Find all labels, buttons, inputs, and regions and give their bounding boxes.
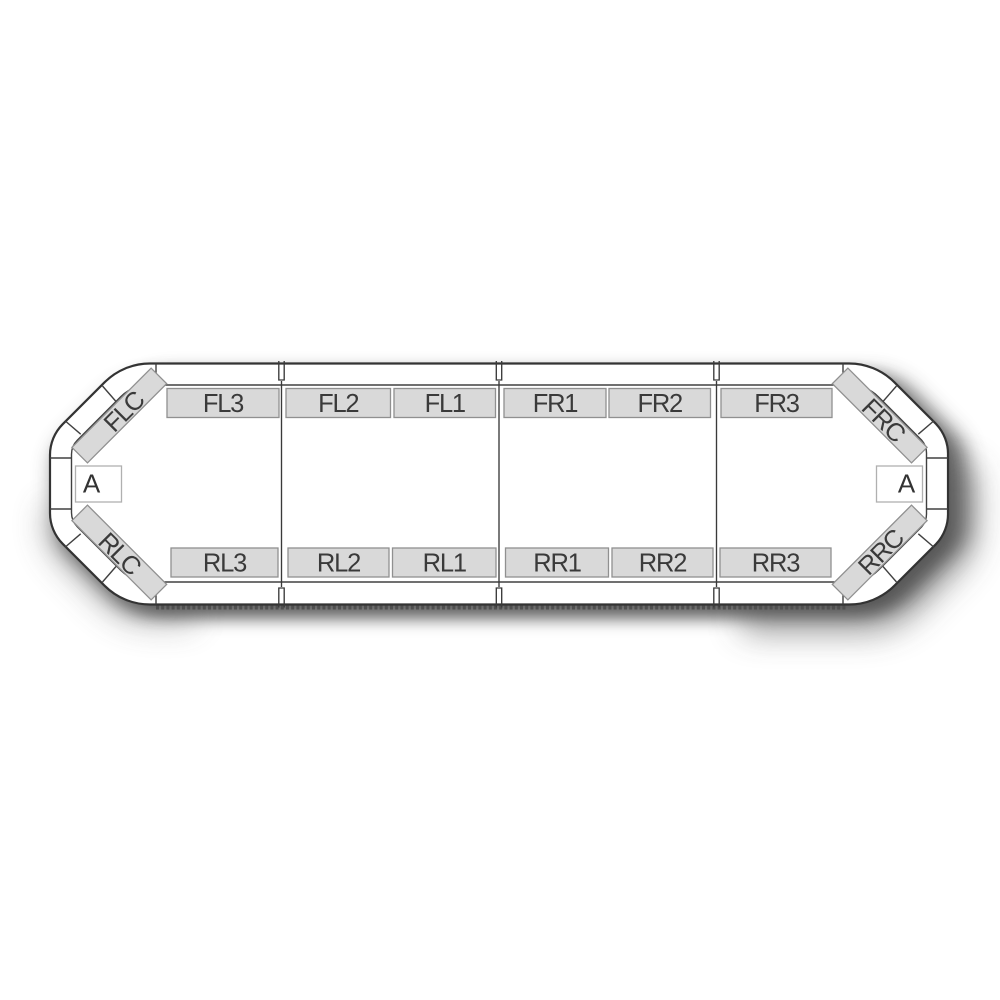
svg-text:A: A: [898, 469, 916, 499]
svg-text:FR2: FR2: [637, 390, 682, 418]
svg-text:RR1: RR1: [533, 550, 580, 578]
svg-text:FL2: FL2: [318, 390, 358, 418]
svg-text:FL3: FL3: [203, 390, 244, 418]
svg-text:RL2: RL2: [317, 550, 360, 578]
svg-text:RR2: RR2: [639, 550, 686, 578]
svg-text:RL1: RL1: [423, 550, 466, 578]
svg-text:FR1: FR1: [533, 390, 578, 418]
svg-text:A: A: [83, 469, 101, 499]
svg-text:FR3: FR3: [754, 390, 800, 418]
svg-text:RR3: RR3: [752, 550, 800, 578]
svg-text:FL1: FL1: [425, 390, 465, 418]
svg-text:RL3: RL3: [203, 550, 247, 578]
